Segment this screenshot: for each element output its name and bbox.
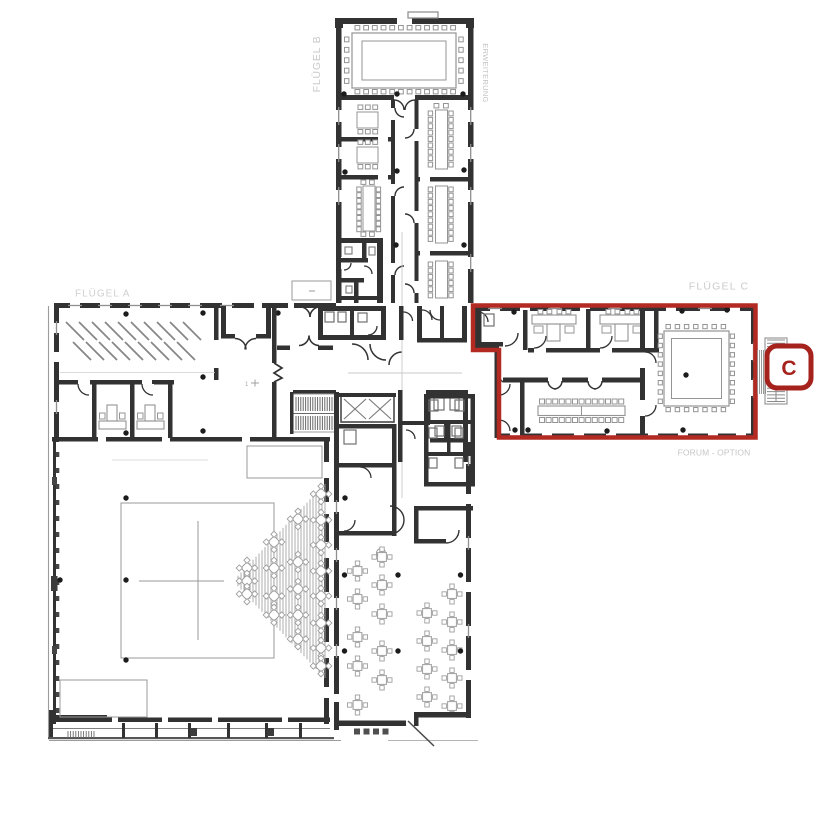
- svg-text:FLÜGEL A: FLÜGEL A: [75, 288, 130, 300]
- svg-text:FLÜGEL C: FLÜGEL C: [689, 281, 750, 293]
- svg-text:C: C: [781, 357, 796, 380]
- svg-text:FLÜGEL B: FLÜGEL B: [311, 36, 323, 93]
- svg-text:ERWEITERUNG: ERWEITERUNG: [481, 43, 490, 102]
- svg-text:FORUM - OPTION: FORUM - OPTION: [678, 448, 751, 458]
